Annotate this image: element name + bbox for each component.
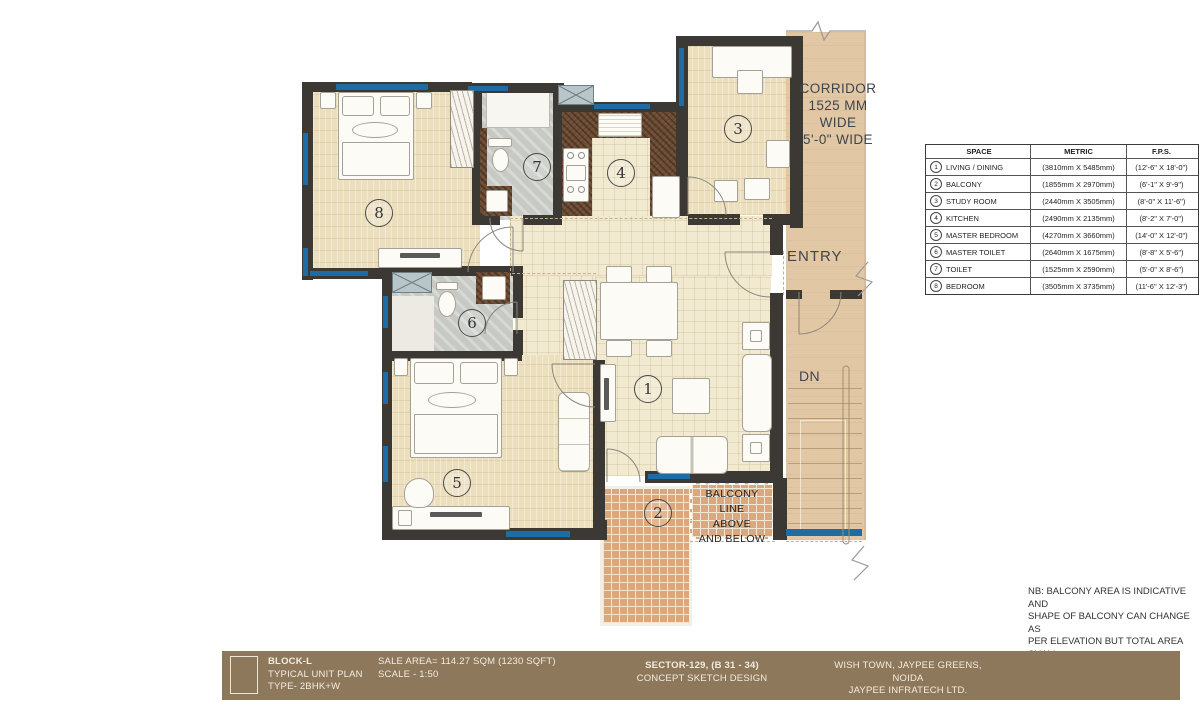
desk-chair [404,478,434,508]
window [506,531,570,537]
nightstand [504,358,518,376]
chair [766,140,790,168]
entry-label: ENTRY [787,248,843,265]
side-table-inner [750,442,762,454]
pillow [380,96,410,116]
fps-value: (6'-1" X 9'-9") [1126,176,1196,192]
wall [786,290,802,299]
window [468,86,508,91]
wardrobe [563,280,597,360]
room-number-bedroom: 8 [365,199,393,227]
metric-value: (1525mm X 2590mm) [1030,261,1126,277]
pillow [342,96,374,116]
balcony-line-label: BALCONY LINE ABOVE AND BELOW [692,487,772,547]
sector-info: SECTOR-129, (B 31 - 34) CONCEPT SKETCH D… [612,660,792,685]
tv [430,512,482,517]
fps-value: (5'-0" X 8'-6") [1126,261,1196,277]
dn-label: DN [799,368,820,384]
legend-row: 2BALCONY (1855mm X 2970mm) (6'-1" X 9'-9… [926,175,1198,192]
room-number-living: 1 [634,375,662,403]
wall [523,215,562,225]
dining-chair [606,266,632,283]
window [594,104,650,109]
room-number-toilet: 7 [523,153,551,181]
metric-value: (2640mm X 1675mm) [1030,244,1126,260]
nightstand [394,358,408,376]
metric-value: (3810mm X 5485mm) [1030,159,1126,175]
window [383,296,388,328]
legend-row: 4KITCHEN (2490mm X 2135mm) (8'-2" X 7'-0… [926,209,1198,226]
shaft-box [392,272,432,293]
bed-cushion [352,122,398,138]
metric-value: (1855mm X 2970mm) [1030,176,1126,192]
hob-burner [567,152,574,159]
space-name: MASTER TOILET [946,248,1005,257]
row-number-circle: 6 [930,246,942,258]
tv [400,253,440,258]
room-number-balcony: 2 [644,499,672,527]
hob-burner [578,152,585,159]
row-number-circle: 8 [930,280,942,292]
wardrobe [450,90,474,168]
fps-value: (14'-0" X 12'-0") [1126,227,1196,243]
legend-row: 3STUDY ROOM (2440mm X 3505mm) (8'-0" X 1… [926,192,1198,209]
bed-blanket [342,142,410,176]
sofa [656,436,728,474]
legend-header-space: SPACE [926,145,1030,158]
wc-bowl [492,148,509,172]
legend-header-fps: F.P.S. [1126,145,1196,158]
space-name: MASTER BEDROOM [946,231,1018,240]
room-number-study: 3 [724,115,752,143]
space-name: STUDY ROOM [946,197,997,206]
pillow [414,362,454,384]
threshold-dash [783,251,784,295]
foyer-floor [510,216,772,276]
desk-item [398,510,412,526]
chair [737,70,763,94]
threshold-dash [510,218,511,276]
window [310,271,368,276]
bed-cushion [428,392,476,408]
space-name: LIVING / DINING [946,163,1003,172]
washbasin [486,190,508,212]
washbasin [482,276,506,300]
fps-value: (8'-2" X 7'-0") [1126,210,1196,226]
title-bar-logo-box [230,656,258,694]
row-number-circle: 5 [930,229,942,241]
wall [773,478,787,540]
nightstand [416,92,432,109]
kitchen-sink [598,113,642,137]
legend-row: 8BEDROOM (3505mm X 3735mm) (11'-6" X 12'… [926,277,1198,294]
room-number-kitchen: 4 [607,159,635,187]
window [383,446,388,482]
fps-value: (8'-8" X 5'-6") [1126,244,1196,260]
coffee-table [672,378,710,414]
room-number-master-toilet: 6 [458,309,486,337]
threshold-dash [512,273,596,274]
window [303,248,308,276]
hob-burner [567,186,574,193]
bed-blanket [414,414,498,454]
company-info: WISH TOWN, JAYPEE GREENS, NOIDA JAYPEE I… [818,660,998,698]
dining-chair [646,340,672,357]
area-info: SALE AREA= 114.27 SQM (1230 SQFT) SCALE … [378,656,556,681]
legend-row: 1LIVING / DINING (3810mm X 5485mm) (12'-… [926,158,1198,175]
threshold-dash [786,541,862,542]
threshold-dash [510,218,772,219]
shaft-box [558,85,594,105]
wc-bowl [438,291,456,317]
staircase-landing-outline [800,420,846,530]
floor-plan-sheet: 1 2 3 4 5 6 7 8 CORRIDOR 1525 MM WIDE 5'… [0,0,1200,707]
wall [763,214,803,225]
space-name: BEDROOM [946,282,985,291]
window [383,372,388,404]
wall [770,225,783,255]
tv [604,378,609,410]
room-number-master-bedroom: 5 [443,469,471,497]
fridge [652,176,680,218]
row-number-circle: 1 [930,161,942,173]
wc-tank [488,138,512,147]
space-name: KITCHEN [946,214,979,223]
tv-cabinet [378,248,462,268]
wall [688,214,740,225]
side-table-inner [750,330,762,342]
space-name: BALCONY [946,180,982,189]
legend-header-row: SPACE METRIC F.P.S. [926,145,1198,158]
break-line-icon [852,546,868,580]
metric-value: (2490mm X 2135mm) [1030,210,1126,226]
legend-row: 6MASTER TOILET (2640mm X 1675mm) (8'-8" … [926,243,1198,260]
toilet-7-shower [486,92,550,128]
pillow [460,362,498,384]
window [336,84,428,90]
hob-burner [578,186,585,193]
legend-header-metric: METRIC [1030,145,1126,158]
fps-value: (11'-6" X 12'-3") [1126,278,1196,294]
title-bar: BLOCK-L TYPICAL UNIT PLAN TYPE- 2BHK+W S… [222,651,1180,700]
window [303,133,308,185]
chair [714,180,738,202]
wall [676,36,802,46]
dining-chair [646,266,672,283]
area-legend-table: SPACE METRIC F.P.S. 1LIVING / DINING (38… [925,144,1199,295]
wc-tank [436,282,458,290]
space-name: TOILET [946,265,972,274]
fps-value: (8'-0" X 11'-6") [1126,193,1196,209]
master-toilet-shower [392,296,434,353]
window [648,474,690,479]
wall [478,215,500,225]
dining-table [600,282,678,340]
fps-value: (12'-6" X 18'-0") [1126,159,1196,175]
legend-row: 7TOILET (1525mm X 2590mm) (5'-0" X 8'-6"… [926,260,1198,277]
row-number-circle: 7 [930,263,942,275]
row-number-circle: 2 [930,178,942,190]
stair-edge-window [786,529,862,536]
window [679,48,684,106]
metric-value: (2440mm X 3505mm) [1030,193,1126,209]
side-table [744,178,770,200]
hob-tray [566,165,586,181]
dining-chair [606,340,632,357]
block-info: BLOCK-L TYPICAL UNIT PLAN TYPE- 2BHK+W [268,656,363,694]
legend-row: 5MASTER BEDROOM (4270mm X 3660mm) (14'-0… [926,226,1198,243]
couch [558,392,590,472]
wall [593,520,607,540]
row-number-circle: 4 [930,212,942,224]
wall [830,290,862,299]
row-number-circle: 3 [930,195,942,207]
metric-value: (4270mm X 3660mm) [1030,227,1126,243]
nightstand [320,92,336,109]
armchair [742,354,772,432]
corridor-label: CORRIDOR 1525 MM WIDE 5'-0" WIDE [792,80,884,148]
metric-value: (3505mm X 3735mm) [1030,278,1126,294]
